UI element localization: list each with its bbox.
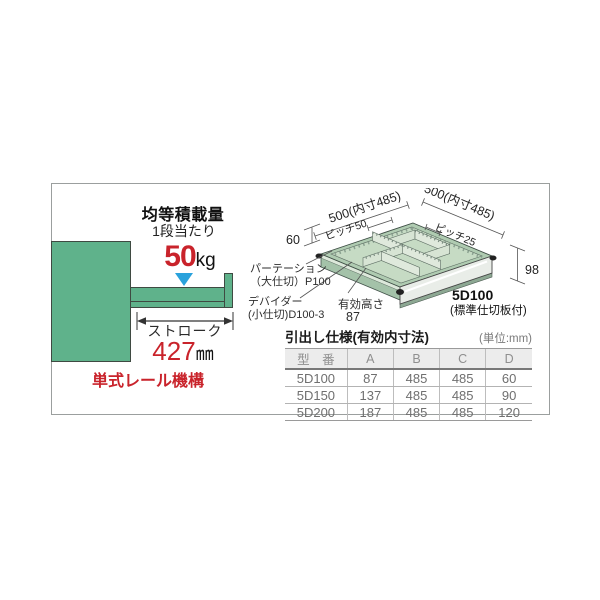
- table-row: 5D100 87 485 485 60: [285, 369, 532, 387]
- cell-a: 187: [347, 404, 393, 421]
- spec-table-title: 引出し仕様(有効内寸法): [285, 326, 429, 346]
- cabinet-body: [51, 241, 131, 362]
- right-knob-icon: [490, 256, 497, 261]
- load-capacity-value-row: 50kg: [140, 240, 240, 274]
- drawer-isometric-diagram: 500(内寸485) ピッチ50 500(内寸485) ピッチ25 60 98 …: [240, 188, 560, 340]
- cell-c: 485: [440, 404, 486, 421]
- stroke-unit: ㎜: [196, 344, 214, 364]
- cell-d: 90: [486, 387, 532, 404]
- stroke-value-row: 427㎜: [133, 336, 233, 367]
- pointer-triangle-icon: [175, 273, 193, 286]
- col-header-a: A: [347, 349, 393, 370]
- partition-label-line2: （大仕切）P100: [250, 274, 331, 288]
- dim-right-label: 500(内寸485): [422, 188, 497, 223]
- col-header-model: 型 番: [285, 349, 347, 370]
- cell-model: 5D200: [285, 404, 347, 421]
- col-header-c: C: [440, 349, 486, 370]
- cell-a: 87: [347, 369, 393, 387]
- cell-a: 137: [347, 387, 393, 404]
- partition-label-line1: パーテーション: [250, 262, 327, 275]
- front-knob-icon: [396, 289, 404, 295]
- cell-model: 5D150: [285, 387, 347, 404]
- load-capacity-subtitle: 1段当たり: [134, 221, 234, 241]
- drawer-front-panel: [224, 273, 233, 308]
- divider-label-line1: デバイダー: [248, 294, 303, 308]
- spec-table-unit-note: (単位:mm): [479, 330, 532, 346]
- effective-height-label: 有効高さ: [338, 297, 384, 311]
- back-height-label: 60: [286, 233, 300, 247]
- col-header-d: D: [486, 349, 532, 370]
- extended-drawer: [130, 287, 226, 308]
- cell-model: 5D100: [285, 369, 347, 387]
- load-capacity-value: 50: [164, 240, 195, 273]
- table-row: 5D150 137 485 485 90: [285, 387, 532, 404]
- effective-height-value: 87: [346, 310, 360, 324]
- cell-b: 485: [393, 387, 439, 404]
- col-header-b: B: [393, 349, 439, 370]
- product-spec-image: 均等積載量 1段当たり 50kg ストローク 427㎜ 単式レール機構: [0, 0, 600, 600]
- load-capacity-unit: kg: [196, 250, 216, 271]
- cell-c: 485: [440, 387, 486, 404]
- rail-mechanism-label: 単式レール機構: [88, 367, 208, 391]
- cell-b: 485: [393, 404, 439, 421]
- cell-d: 60: [486, 369, 532, 387]
- cell-d: 120: [486, 404, 532, 421]
- stroke-value: 427: [152, 336, 195, 366]
- front-height-label: 98: [525, 263, 539, 277]
- spec-table-block: 引出し仕様(有効内寸法) (単位:mm) 型 番 A B C D 5D100 8…: [285, 326, 532, 421]
- model-note-label: (標準仕切板付): [450, 303, 527, 317]
- spec-table: 型 番 A B C D 5D100 87 485 485 60 5D150 13: [285, 348, 532, 421]
- table-row: 5D200 187 485 485 120: [285, 404, 532, 421]
- table-header-row: 型 番 A B C D: [285, 349, 532, 370]
- divider-label-line2: (小仕切)D100-3: [248, 308, 324, 321]
- spec-table-header-row: 引出し仕様(有効内寸法) (単位:mm): [285, 326, 532, 346]
- model-label: 5D100: [452, 287, 493, 303]
- cell-b: 485: [393, 369, 439, 387]
- cell-c: 485: [440, 369, 486, 387]
- drawer-rail-line: [131, 301, 225, 302]
